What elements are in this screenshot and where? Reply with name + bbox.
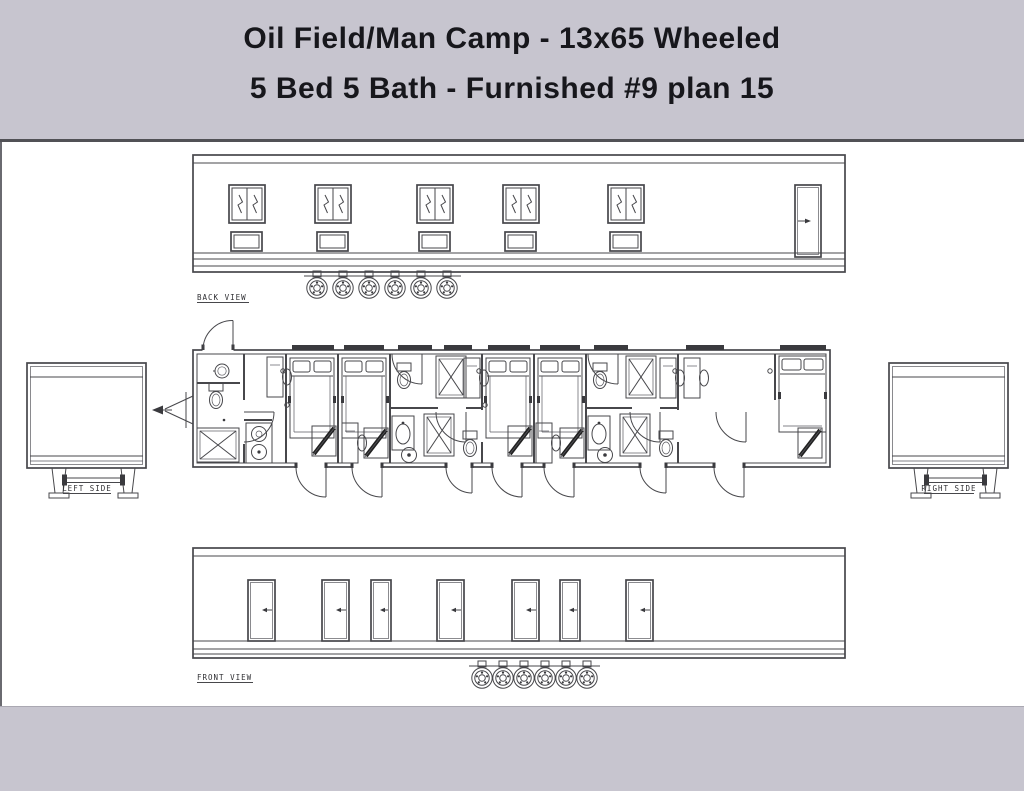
floor-plan-drawing	[152, 320, 830, 497]
bed-icon	[538, 358, 582, 438]
bathroom-fixtures	[197, 364, 272, 463]
bedroom-furniture	[684, 356, 827, 458]
desk-icon	[660, 358, 685, 398]
tow-hitch-icon	[152, 392, 193, 428]
back-wheels-icon	[307, 271, 457, 298]
sink-icon	[392, 416, 414, 450]
wardrobe-icon	[508, 426, 532, 456]
back-view-drawing: BACK VIEW	[193, 155, 845, 303]
back-window-icon	[229, 185, 644, 223]
wardrobe-icon	[560, 428, 584, 458]
right-side-drawing: RIGHT SIDE	[889, 363, 1008, 498]
left-side-drawing: LEFT SIDE	[27, 363, 146, 498]
technical-drawing: BACK VIEW	[0, 0, 1024, 791]
left-side-label: LEFT SIDE	[62, 484, 112, 493]
back-vent-icon	[231, 232, 641, 251]
toilet-icon	[209, 383, 223, 409]
right-side-label: RIGHT SIDE	[921, 484, 976, 493]
back-view-label: BACK VIEW	[197, 293, 247, 302]
shower-icon	[197, 428, 239, 462]
toilet-icon	[593, 363, 607, 389]
toilet-icon	[659, 431, 673, 457]
bathroom-fixtures	[588, 356, 685, 463]
front-wheels-icon	[472, 661, 597, 688]
plan-entry-door-top	[202, 320, 235, 353]
bed-icon	[342, 358, 386, 438]
sink-icon	[588, 416, 610, 450]
shower-icon	[436, 356, 466, 398]
wardrobe-icon	[364, 428, 388, 458]
shower-icon	[626, 356, 656, 398]
desk-icon	[267, 357, 292, 397]
front-view-drawing: FRONT VIEW	[193, 548, 845, 688]
wall-light-icon	[281, 369, 772, 407]
back-door-icon	[795, 185, 821, 257]
front-view-label: FRONT VIEW	[197, 673, 252, 682]
toilet-icon	[463, 431, 477, 457]
desk-icon	[536, 423, 561, 463]
sink-icon	[213, 364, 229, 378]
front-door-icon	[248, 580, 653, 641]
bathroom-fixtures	[392, 356, 489, 463]
desk-icon	[684, 358, 709, 398]
floorplan-sheet: Oil Field/Man Camp - 13x65 Wheeled 5 Bed…	[0, 0, 1024, 791]
toilet-icon	[397, 363, 411, 389]
bed-icon	[779, 356, 826, 432]
wardrobe-icon	[312, 426, 336, 456]
shower-icon	[424, 414, 454, 456]
shower-icon	[620, 414, 650, 456]
desk-icon	[464, 358, 489, 398]
washer-dryer-icon	[246, 423, 272, 463]
